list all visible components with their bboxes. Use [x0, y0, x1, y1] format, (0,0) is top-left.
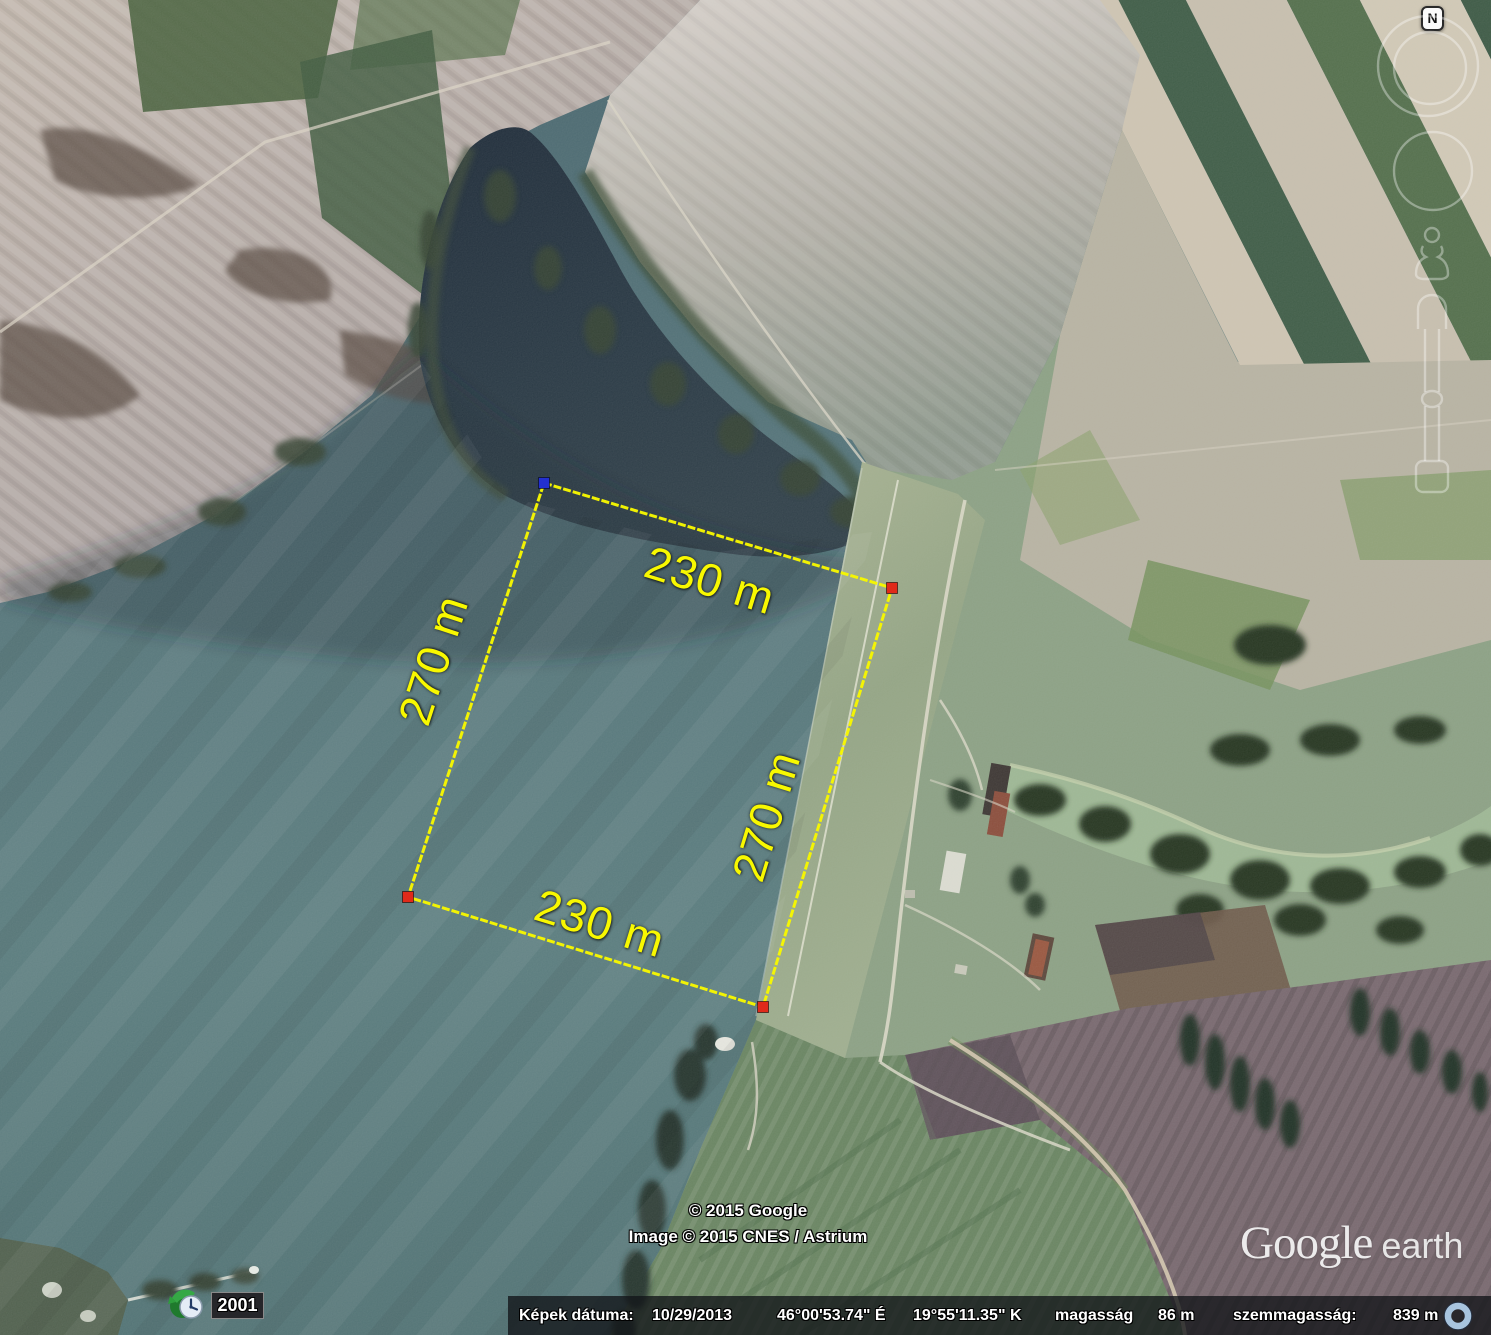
measurement-overlay	[0, 0, 1491, 1335]
measure-point-3[interactable]	[758, 1002, 769, 1013]
copyright-line2: Image © 2015 CNES / Astrium	[593, 1224, 903, 1250]
logo-google-text: Google	[1240, 1217, 1372, 1269]
copyright-attribution: © 2015 Google Image © 2015 CNES / Astriu…	[593, 1198, 903, 1250]
eye-altitude-label: szemmagasság:	[1233, 1296, 1357, 1335]
status-bar: Képek dátuma: 10/29/2013 46°00'53.74" É …	[508, 1296, 1491, 1335]
zoom-slider[interactable]	[1416, 295, 1448, 492]
elevation-label: magasság	[1055, 1296, 1133, 1335]
streaming-progress-icon	[1442, 1300, 1474, 1332]
imagery-date-value: 10/29/2013	[652, 1296, 732, 1335]
longitude-value: 19°55'11.35" K	[913, 1296, 1022, 1335]
clock-icon	[168, 1286, 206, 1324]
google-earth-logo: Googleearth	[1240, 1216, 1463, 1270]
logo-earth-text: earth	[1381, 1225, 1463, 1266]
zoom-slider-handle[interactable]	[1422, 391, 1442, 407]
copyright-line1: © 2015 Google	[593, 1198, 903, 1224]
navigation-controls	[1370, 0, 1491, 520]
imagery-year-badge: 2001	[211, 1292, 264, 1319]
zoom-in-button[interactable]	[1418, 295, 1446, 329]
compass-look-joystick[interactable]	[1378, 16, 1478, 116]
historical-imagery-indicator[interactable]: 2001	[168, 1286, 264, 1324]
imagery-date-label: Képek dátuma:	[519, 1296, 634, 1335]
measure-point-2[interactable]	[887, 583, 898, 594]
move-joystick[interactable]	[1394, 132, 1472, 210]
measure-point-start[interactable]	[539, 478, 550, 489]
elevation-value: 86 m	[1158, 1296, 1194, 1335]
zoom-track	[1425, 329, 1439, 461]
google-earth-viewport: 230 m 270 m 270 m 230 m © 2015 Google Im…	[0, 0, 1491, 1335]
latitude-value: 46°00'53.74" É	[777, 1296, 886, 1335]
pegman-control[interactable]	[1416, 228, 1448, 279]
measure-point-4[interactable]	[403, 892, 414, 903]
zoom-out-button[interactable]	[1416, 461, 1448, 492]
eye-altitude-value: 839 m	[1393, 1296, 1438, 1335]
